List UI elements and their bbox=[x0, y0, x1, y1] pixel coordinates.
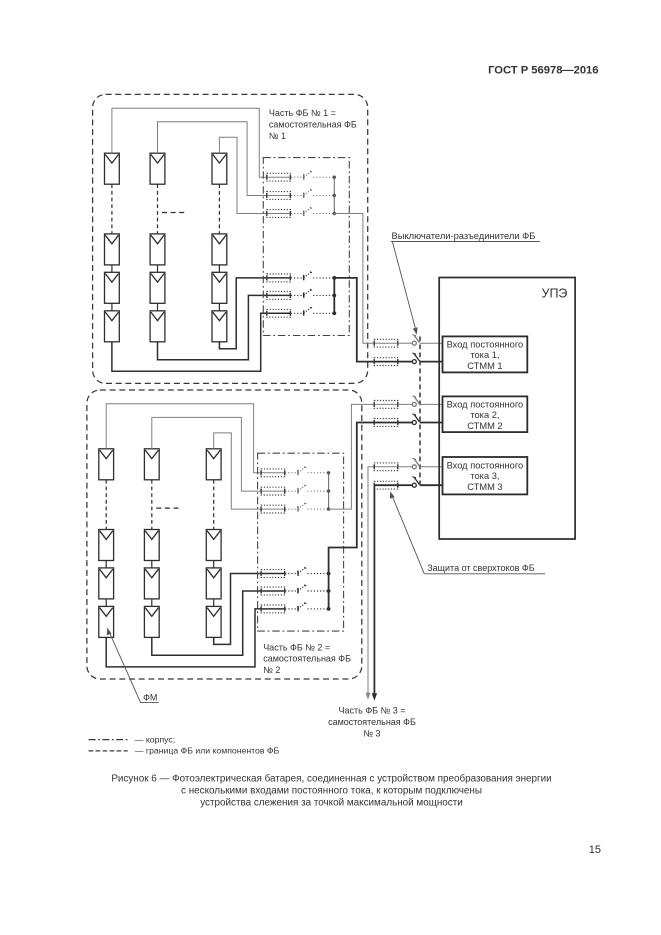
svg-text:— граница ФБ или компонентов Ф: — граница ФБ или компонентов ФБ bbox=[135, 746, 280, 756]
svg-text:Часть ФБ № 2 =: Часть ФБ № 2 = bbox=[263, 642, 330, 652]
svg-text:тока 2,: тока 2, bbox=[470, 410, 499, 420]
svg-text:15: 15 bbox=[589, 844, 601, 856]
svg-text:Рисунок 6 — Фотоэлектрическая: Рисунок 6 — Фотоэлектрическая батарея, с… bbox=[111, 773, 551, 784]
svg-text:СТММ 1: СТММ 1 bbox=[467, 361, 502, 371]
svg-text:самостоятельная ФБ: самостоятельная ФБ bbox=[269, 120, 357, 130]
svg-text:Вход постоянного: Вход постоянного bbox=[447, 460, 524, 470]
svg-text:ФМ: ФМ bbox=[143, 693, 157, 703]
svg-text:самостоятельная ФБ: самостоятельная ФБ bbox=[263, 654, 351, 664]
svg-text:Защита от сверхтоков ФБ: Защита от сверхтоков ФБ bbox=[427, 563, 535, 573]
svg-text:СТММ 3: СТММ 3 bbox=[467, 482, 502, 492]
svg-text:Часть ФБ № 1 =: Часть ФБ № 1 = bbox=[269, 108, 336, 118]
svg-text:устройства слежения за точкой: устройства слежения за точкой максимальн… bbox=[200, 797, 463, 808]
svg-text:тока 1,: тока 1, bbox=[470, 350, 499, 360]
svg-text:УПЭ: УПЭ bbox=[542, 287, 568, 301]
svg-text:тока 3,: тока 3, bbox=[470, 471, 499, 481]
svg-text:Часть ФБ № 3 =: Часть ФБ № 3 = bbox=[339, 705, 406, 715]
svg-text:самостоятельная ФБ: самостоятельная ФБ bbox=[328, 717, 416, 727]
svg-text:Вход постоянного: Вход постоянного bbox=[447, 399, 524, 409]
svg-text:— корпус;: — корпус; bbox=[135, 734, 175, 744]
svg-text:Вход постоянного: Вход постоянного bbox=[447, 339, 524, 349]
svg-text:№ 2: № 2 bbox=[263, 665, 280, 675]
svg-text:№ 3: № 3 bbox=[363, 728, 380, 738]
svg-text:ГОСТ Р 56978—2016: ГОСТ Р 56978—2016 bbox=[488, 65, 598, 77]
svg-text:СТММ 2: СТММ 2 bbox=[467, 421, 502, 431]
svg-text:№ 1: № 1 bbox=[269, 131, 286, 141]
svg-text:с несколькими входами постоянн: с несколькими входами постоянного тока, … bbox=[181, 785, 482, 796]
svg-text:Выключатели-разъединители ФБ: Выключатели-разъединители ФБ bbox=[392, 231, 536, 241]
